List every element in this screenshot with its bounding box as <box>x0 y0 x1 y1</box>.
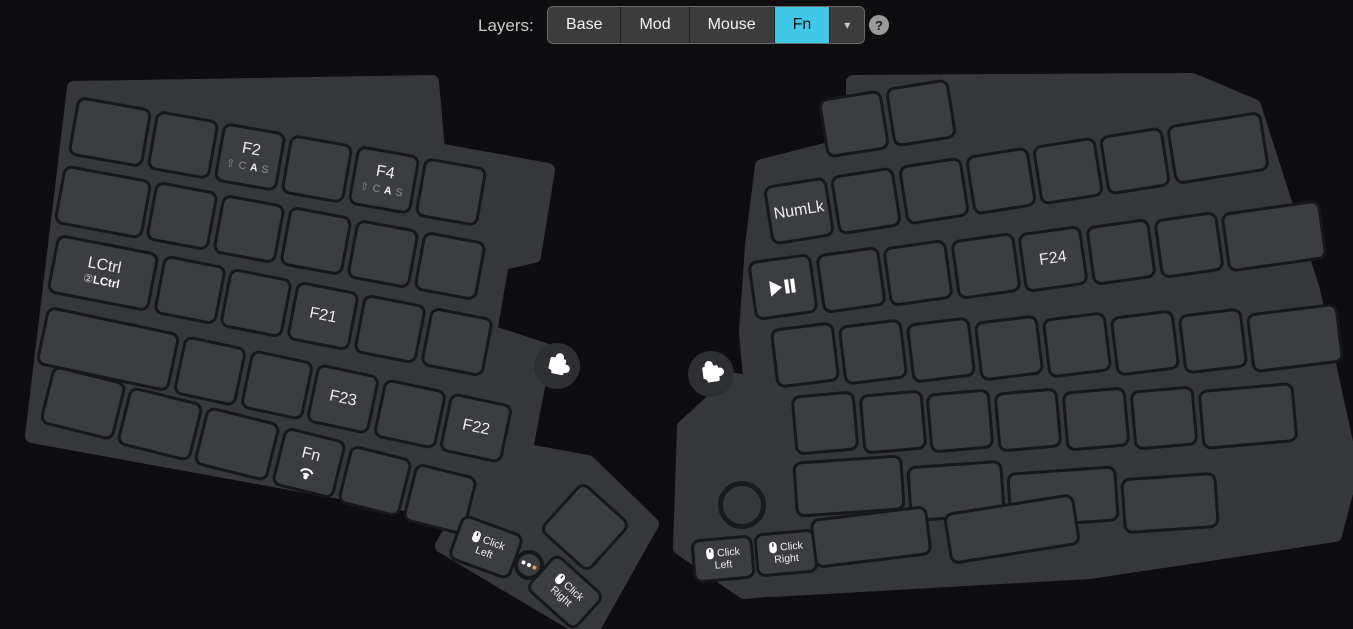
led-dot <box>532 565 537 570</box>
key-f22[interactable]: F22 <box>439 392 514 464</box>
key-f2[interactable]: F2⇧CAS <box>213 122 286 192</box>
key-blank[interactable] <box>882 239 954 307</box>
right-module-puzzle-icon[interactable] <box>688 351 734 397</box>
palm-key-circle[interactable] <box>718 481 766 529</box>
led-dots-button[interactable] <box>514 550 544 580</box>
left-module-puzzle-icon[interactable] <box>534 343 580 389</box>
key-blank[interactable] <box>219 268 293 339</box>
key-f4[interactable]: F4⇧CAS <box>347 145 420 215</box>
key-blank[interactable] <box>965 146 1038 215</box>
key-blank[interactable] <box>906 316 977 383</box>
key-blank[interactable] <box>838 319 909 386</box>
key-blank[interactable] <box>1109 309 1180 376</box>
key-numlk[interactable]: NumLk <box>763 176 836 245</box>
key-blank[interactable] <box>973 314 1044 381</box>
key-blank[interactable] <box>1177 307 1248 374</box>
key-blank[interactable] <box>346 218 420 289</box>
modifier-legend: ⇧CAS <box>359 181 405 201</box>
keyboard-configurator: Layers: BaseModMouseFn▾ ? F2⇧CASF4⇧CASLC… <box>0 0 1353 629</box>
key-blank[interactable] <box>1245 302 1344 373</box>
key-blank[interactable] <box>414 157 487 227</box>
key-blank[interactable] <box>994 387 1063 452</box>
key-blank[interactable] <box>1085 218 1157 286</box>
key-blank[interactable] <box>413 231 487 302</box>
signal-icon <box>295 462 318 482</box>
key-f24[interactable]: F24 <box>1018 225 1090 293</box>
key-blank[interactable] <box>145 181 219 252</box>
key-click-right[interactable]: ClickRight <box>753 528 819 577</box>
key-play-pause[interactable] <box>747 253 819 321</box>
key-blank[interactable] <box>950 232 1022 300</box>
key-blank[interactable] <box>790 391 859 456</box>
key-blank[interactable] <box>1099 126 1172 195</box>
key-blank[interactable] <box>770 321 841 388</box>
key-blank[interactable] <box>1120 471 1220 534</box>
key-blank[interactable] <box>280 133 353 203</box>
key-blank[interactable] <box>146 110 219 180</box>
play-pause-icon <box>769 278 797 297</box>
led-dot <box>526 562 531 567</box>
mouse-icon <box>470 529 483 544</box>
key-blank[interactable] <box>926 388 995 453</box>
modifier-legend: ⇧CAS <box>225 157 271 177</box>
key-blank[interactable] <box>1130 385 1199 450</box>
key-blank[interactable] <box>372 378 447 450</box>
key-blank[interactable] <box>815 246 887 314</box>
key-blank[interactable] <box>897 156 970 225</box>
mouse-icon <box>768 541 778 555</box>
key-blank[interactable] <box>830 166 903 235</box>
key-blank[interactable] <box>1041 312 1112 379</box>
key-blank[interactable] <box>420 306 494 377</box>
key-blank[interactable] <box>172 335 247 407</box>
key-blank[interactable] <box>793 454 907 518</box>
led-dot <box>521 560 526 565</box>
key-blank[interactable] <box>1062 386 1131 451</box>
mouse-icon <box>705 547 715 561</box>
key-blank[interactable] <box>858 390 927 455</box>
key-blank[interactable] <box>1153 211 1225 279</box>
key-blank[interactable] <box>153 255 227 326</box>
key-blank[interactable] <box>1032 136 1105 205</box>
key-blank[interactable] <box>885 78 958 147</box>
key-click-left[interactable]: ClickLeft <box>690 534 756 583</box>
key-blank[interactable] <box>818 89 891 158</box>
key-blank[interactable] <box>279 206 353 277</box>
key-blank[interactable] <box>1198 382 1299 450</box>
key-blank[interactable] <box>353 294 427 365</box>
key-blank[interactable] <box>212 194 286 265</box>
key-f21[interactable]: F21 <box>286 281 360 352</box>
